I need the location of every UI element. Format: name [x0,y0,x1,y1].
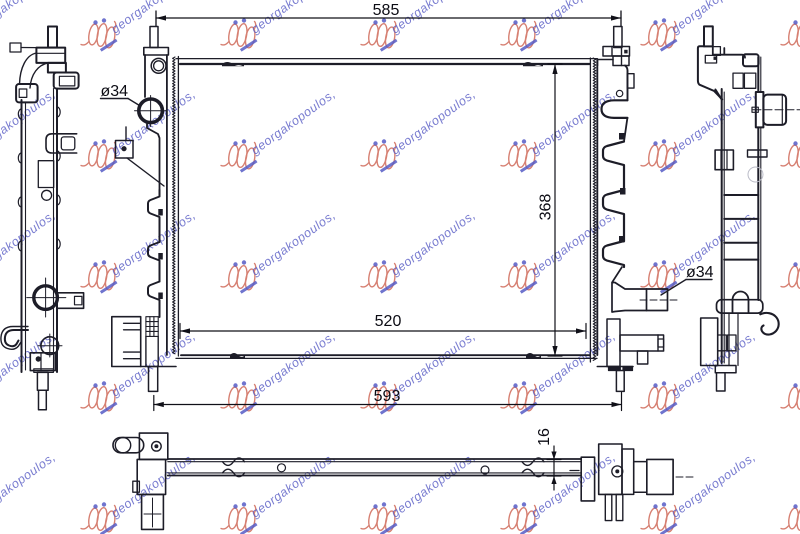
svg-text:368: 368 [538,194,555,221]
svg-text:593: 593 [374,388,401,405]
svg-text:ø34: ø34 [101,83,129,100]
svg-text:ø34: ø34 [686,264,714,281]
svg-text:585: 585 [373,2,400,19]
svg-text:520: 520 [375,313,402,330]
svg-text:16: 16 [536,428,553,446]
